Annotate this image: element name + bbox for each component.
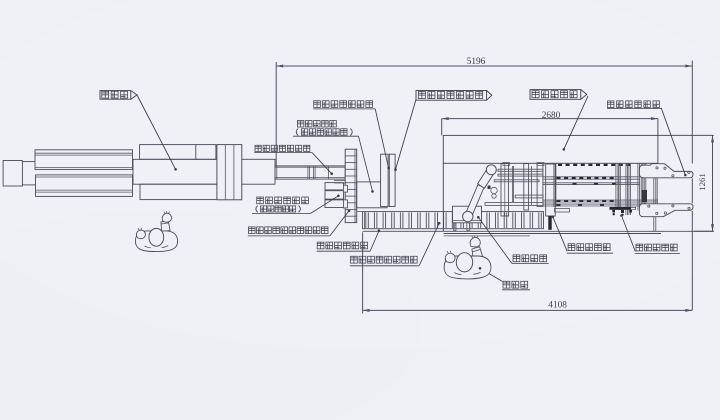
svg-text:2680: 2680 xyxy=(542,111,561,121)
svg-text:5196: 5196 xyxy=(467,57,486,67)
svg-text:1261: 1261 xyxy=(697,173,707,191)
svg-text:4108: 4108 xyxy=(548,301,567,311)
